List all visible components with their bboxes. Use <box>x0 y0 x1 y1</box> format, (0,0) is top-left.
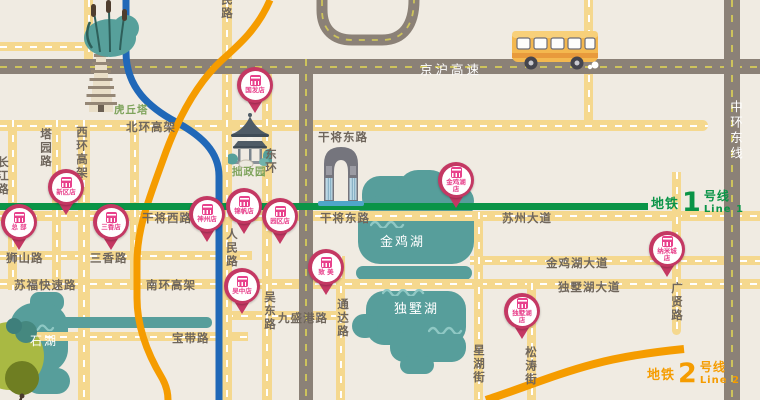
pin-inner-circle: 新区店 <box>52 173 81 202</box>
label-donghuan: 东环 <box>263 148 279 175</box>
line1-number: 1 <box>682 189 701 216</box>
metro-line2-label: 地铁 2 号线 Line 2 <box>647 360 740 387</box>
label-guangxian-lu: 广贤路 <box>669 282 685 323</box>
pin-inner-circle: 园区店 <box>266 202 295 231</box>
line2-prefix: 地铁 <box>647 364 675 383</box>
pin-inner-circle: 吴中店 <box>228 272 257 301</box>
label-renmin-lu-top: 人民路 <box>219 0 235 21</box>
pin-inner-circle: 金鸡湖 店 <box>442 166 471 195</box>
store-pin-icon: 新区店 <box>48 169 84 205</box>
line2-number: 2 <box>678 360 697 387</box>
label-baodai-lu: 宝带路 <box>172 330 210 346</box>
label-zhuozhengyuan: 拙政园 <box>232 164 267 179</box>
label-dushu-lake: 独墅湖 <box>394 298 439 317</box>
store-pin-label: 神州店 <box>197 216 217 223</box>
label-shi-lake: 石湖 <box>30 332 58 349</box>
label-jinghu-gaosu: 京沪高速 <box>420 59 482 78</box>
pin-inner-circle: 三香店 <box>97 208 126 237</box>
shop-glyph-icon <box>451 167 462 178</box>
label-changjiang-lu: 长江路 <box>0 156 11 197</box>
label-jinji-lake: 金鸡湖 <box>380 231 425 250</box>
store-pin-label: 国发店 <box>245 87 265 94</box>
store-pin-label: 总 部 <box>11 224 26 231</box>
line1-suffix: 号线 <box>704 190 744 203</box>
label-dushuhu-dadao: 独墅湖大道 <box>558 279 621 295</box>
store-pin-icon: 国发店 <box>237 67 273 103</box>
shop-glyph-icon <box>517 298 528 309</box>
label-songtao-jie: 松涛街 <box>523 346 539 387</box>
label-tongda-lu: 通达路 <box>335 298 351 339</box>
line1-latin: Line 1 <box>704 204 744 215</box>
pin-zhimei[interactable]: 致 美 <box>308 249 344 295</box>
shop-glyph-icon <box>250 75 261 86</box>
pin-inner-circle: 神州店 <box>193 200 222 229</box>
wave-icon <box>428 324 470 334</box>
pin-shenzhoudian[interactable]: 神州店 <box>189 196 225 242</box>
store-pin-label: 吴中店 <box>232 288 252 295</box>
dushu-lake <box>400 356 434 374</box>
store-pin-label: 金鸡湖 店 <box>446 179 466 194</box>
store-pin-label: 纳米城 店 <box>657 248 677 263</box>
store-pin-icon: 神州店 <box>189 196 225 232</box>
shop-glyph-icon <box>239 196 250 207</box>
shop-glyph-icon <box>202 204 213 215</box>
road-top-left <box>0 42 90 51</box>
road-jinjihu-dadao <box>470 256 760 265</box>
shi-lake <box>60 317 212 328</box>
store-pin-icon: 金鸡湖 店 <box>438 162 474 198</box>
shop-glyph-icon <box>237 276 248 287</box>
label-wudong-lu: 吴东路 <box>262 291 278 332</box>
label-suzhou-dadao: 苏州大道 <box>502 210 552 226</box>
shop-glyph-icon <box>106 212 117 223</box>
pin-zongbu[interactable]: 总 部 <box>1 204 37 250</box>
label-ganjiang-donglu: 干将东路 <box>320 210 370 226</box>
store-pin-label: 新区店 <box>56 189 76 196</box>
store-pin-icon: 吴中店 <box>224 268 260 304</box>
label-nanhuan-gaojia: 南环高架 <box>146 277 196 293</box>
pin-inner-circle: 总 部 <box>5 208 34 237</box>
label-sufu-kuaisulu: 苏福快速路 <box>14 277 77 293</box>
road-sufu-nanhuan-dushuhu-dadao <box>0 279 760 289</box>
jinji-lake <box>356 266 472 280</box>
pin-inner-circle: 国发店 <box>241 71 270 100</box>
metro-line1-label: 地铁 1 号线 Line 1 <box>651 189 744 216</box>
shop-glyph-icon <box>662 236 673 247</box>
label-ganjiang-xilu: 干将西路 <box>142 210 192 226</box>
store-pin-label: 致 美 <box>318 269 333 276</box>
tree-icon <box>0 316 54 400</box>
label-tayuan-lu: 塔园路 <box>38 128 54 169</box>
store-pin-icon: 园区店 <box>262 198 298 234</box>
store-pin-icon: 三香店 <box>93 204 129 240</box>
map-canvas: 地铁 1 号线 Line 1 地铁 2 号线 Line 2 虎丘塔拙政园北环高架… <box>0 0 760 400</box>
pin-wuzhongdian[interactable]: 吴中店 <box>224 268 260 314</box>
label-jinjihu-dadao: 金鸡湖大道 <box>546 255 609 271</box>
label-jiushenggang-lu: 九盛港路 <box>278 310 328 326</box>
pin-inner-circle: 致 美 <box>312 253 341 282</box>
pin-dushuhudian[interactable]: 独墅湖 店 <box>504 293 540 339</box>
pin-jinfandian[interactable]: 锦帆店 <box>226 188 262 234</box>
label-ganjiang-donglu-upper: 干将东路 <box>318 129 368 145</box>
shop-glyph-icon <box>61 177 72 188</box>
shop-glyph-icon <box>275 206 286 217</box>
label-shishan-lu: 狮山路 <box>6 250 44 266</box>
pin-xinqudian[interactable]: 新区店 <box>48 169 84 215</box>
reeds-icon <box>82 0 142 58</box>
pin-inner-circle: 锦帆店 <box>230 192 259 221</box>
store-pin-icon: 总 部 <box>1 204 37 240</box>
line2-suffix: 号线 <box>700 361 740 374</box>
pin-inner-circle: 独墅湖 店 <box>508 297 537 326</box>
road-donghuan-dark <box>299 59 313 400</box>
dushu-lake <box>352 314 378 338</box>
label-xinghu-jie: 星湖街 <box>471 344 487 385</box>
label-zhonghuan-dongxian: 中环东线 <box>726 100 745 162</box>
label-renmin-lu: 人民路 <box>224 228 240 269</box>
pin-jinjihudian[interactable]: 金鸡湖 店 <box>438 162 474 208</box>
store-pin-label: 园区店 <box>270 218 290 225</box>
shop-glyph-icon <box>14 212 25 223</box>
pin-sanxiangdian[interactable]: 三香店 <box>93 204 129 250</box>
label-beihuan-gaojia: 北环高架 <box>126 119 176 135</box>
label-huqiuta: 虎丘塔 <box>114 102 149 117</box>
line1-prefix: 地铁 <box>651 193 679 212</box>
store-pin-label: 锦帆店 <box>234 208 254 215</box>
store-pin-icon: 纳米城 店 <box>649 231 685 267</box>
store-pin-icon: 锦帆店 <box>226 188 262 224</box>
store-pin-label: 独墅湖 店 <box>512 310 532 325</box>
pin-namichengdian[interactable]: 纳米城 店 <box>649 231 685 277</box>
line2-latin: Line 2 <box>700 375 740 386</box>
gate-of-orient-icon <box>318 140 364 206</box>
shop-glyph-icon <box>321 257 332 268</box>
store-pin-label: 三香店 <box>101 224 121 231</box>
label-sanxiang-lu: 三香路 <box>90 250 128 266</box>
pin-yuanqudian[interactable]: 园区店 <box>262 198 298 244</box>
store-pin-icon: 致 美 <box>308 249 344 285</box>
pin-guofadian[interactable]: 国发店 <box>237 67 273 113</box>
pin-inner-circle: 纳米城 店 <box>653 235 682 264</box>
bus-icon <box>511 26 599 71</box>
store-pin-icon: 独墅湖 店 <box>504 293 540 329</box>
